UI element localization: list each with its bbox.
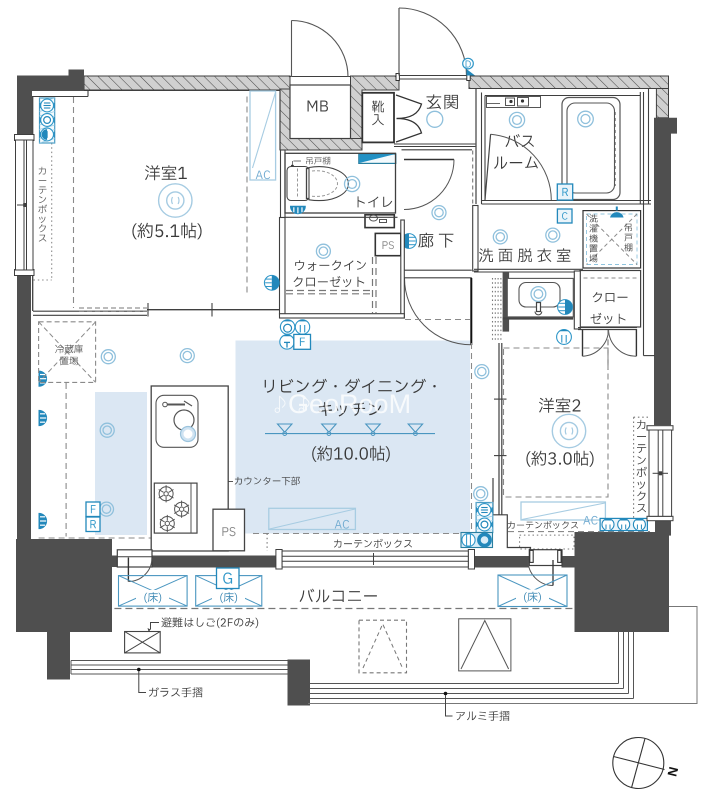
svg-text:GeoRooM: GeoRooM [288, 389, 411, 419]
